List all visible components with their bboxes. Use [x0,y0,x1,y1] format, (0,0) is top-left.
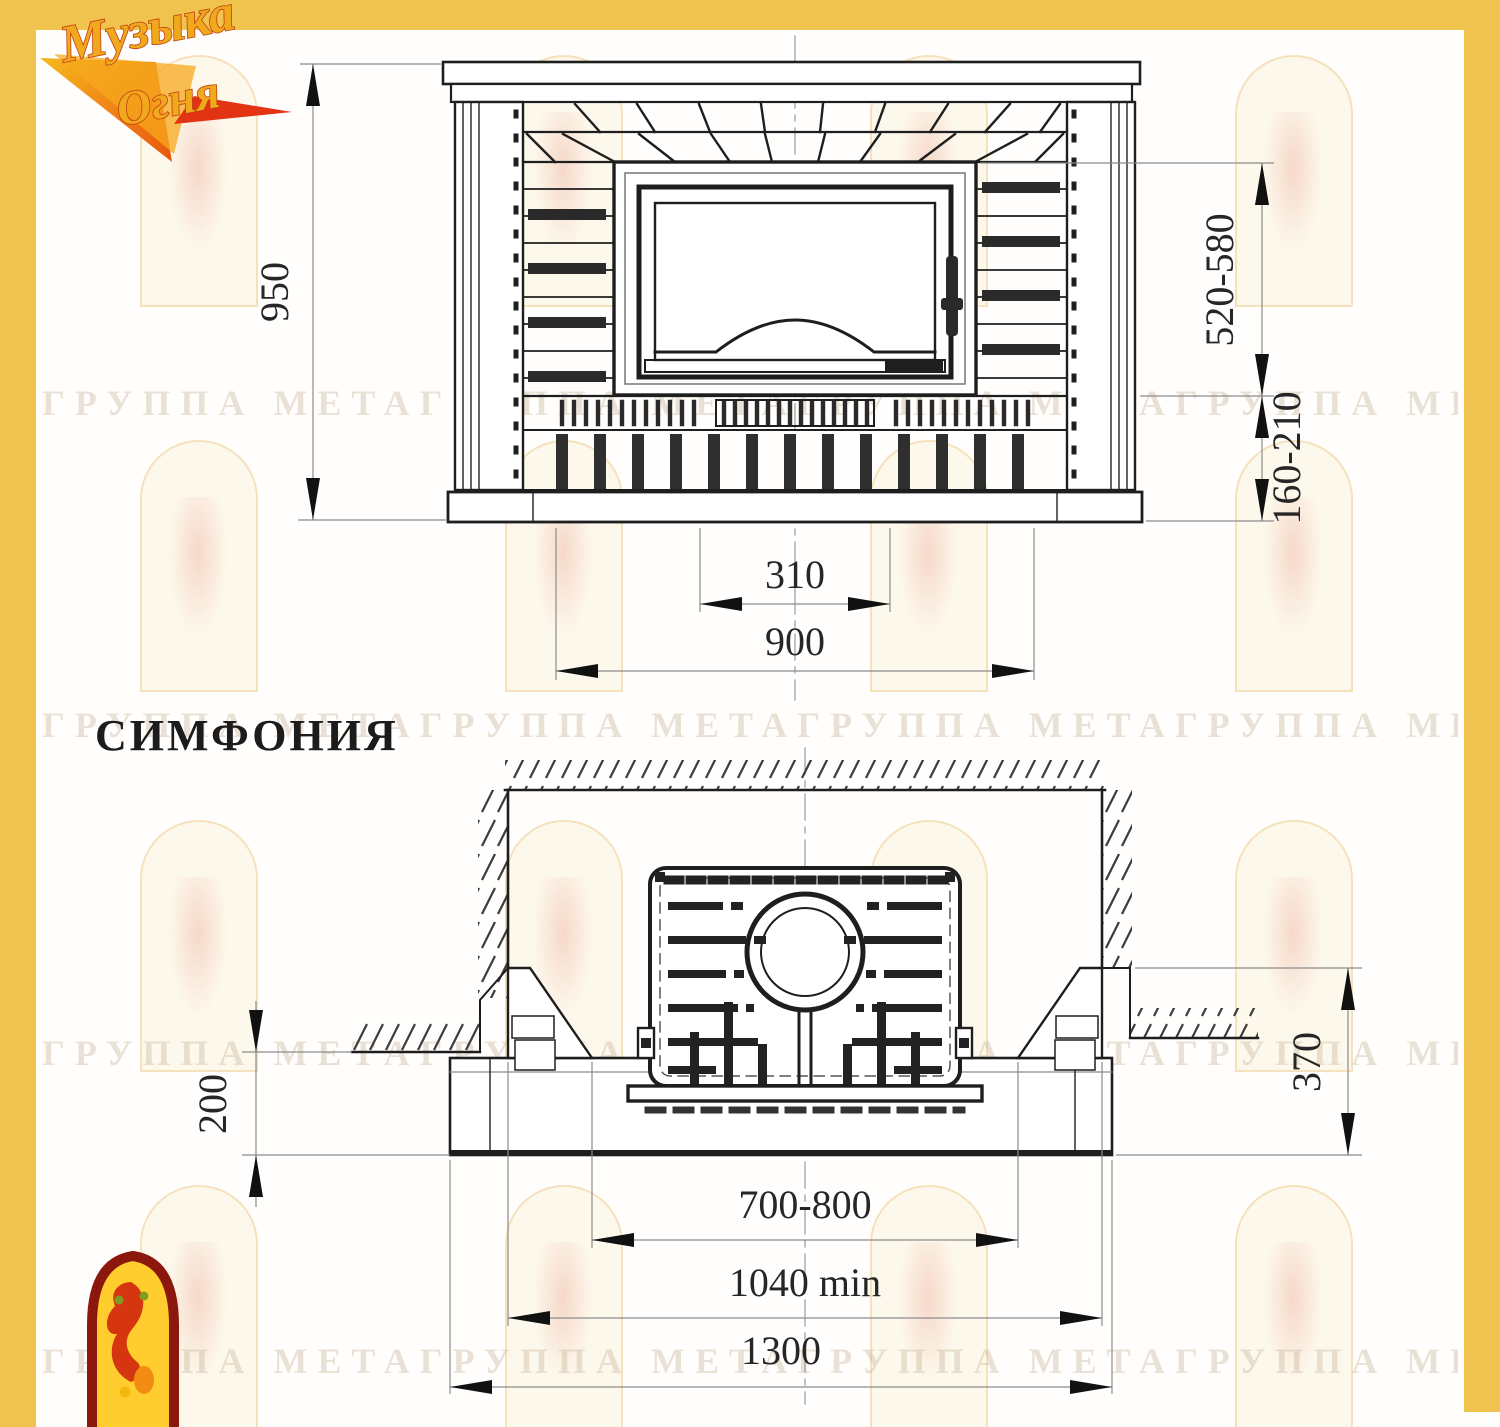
page-border-right [1464,0,1500,1412]
dim-portal-opening: 700-800 [738,1182,871,1227]
dim-niche-width: 1040 min [729,1260,881,1305]
brand-logo: Музыка Огня [24,2,314,192]
scheme-page: ГРУППА МЕТАГРУППА МЕТАГРУППА МЕТАГРУППА … [0,0,1500,1427]
plan-view [352,748,1258,1404]
brand-logo-art: Музыка Огня [24,2,314,192]
flame-emblem-art [83,1240,183,1427]
dim-grate-width: 310 [765,552,825,597]
page-border-left [0,0,36,1427]
dim-overall-height: 950 [252,262,297,322]
dim-front-ledge: 200 [190,1074,235,1134]
dim-base-width: 1300 [741,1328,821,1373]
dim-firebox-to-hearth: 520-580 [1197,213,1242,346]
dim-side-wall: 370 [1284,1032,1329,1092]
dim-hearth-to-floor: 160-210 [1264,391,1309,524]
technical-drawing: 950 520-580 160-210 310 900 СИМФОНИЯ [0,0,1500,1427]
model-name: СИМФОНИЯ [95,711,399,760]
front-elevation-view [443,36,1142,700]
dim-hearth-width: 900 [765,619,825,664]
flame-emblem [83,1240,183,1427]
